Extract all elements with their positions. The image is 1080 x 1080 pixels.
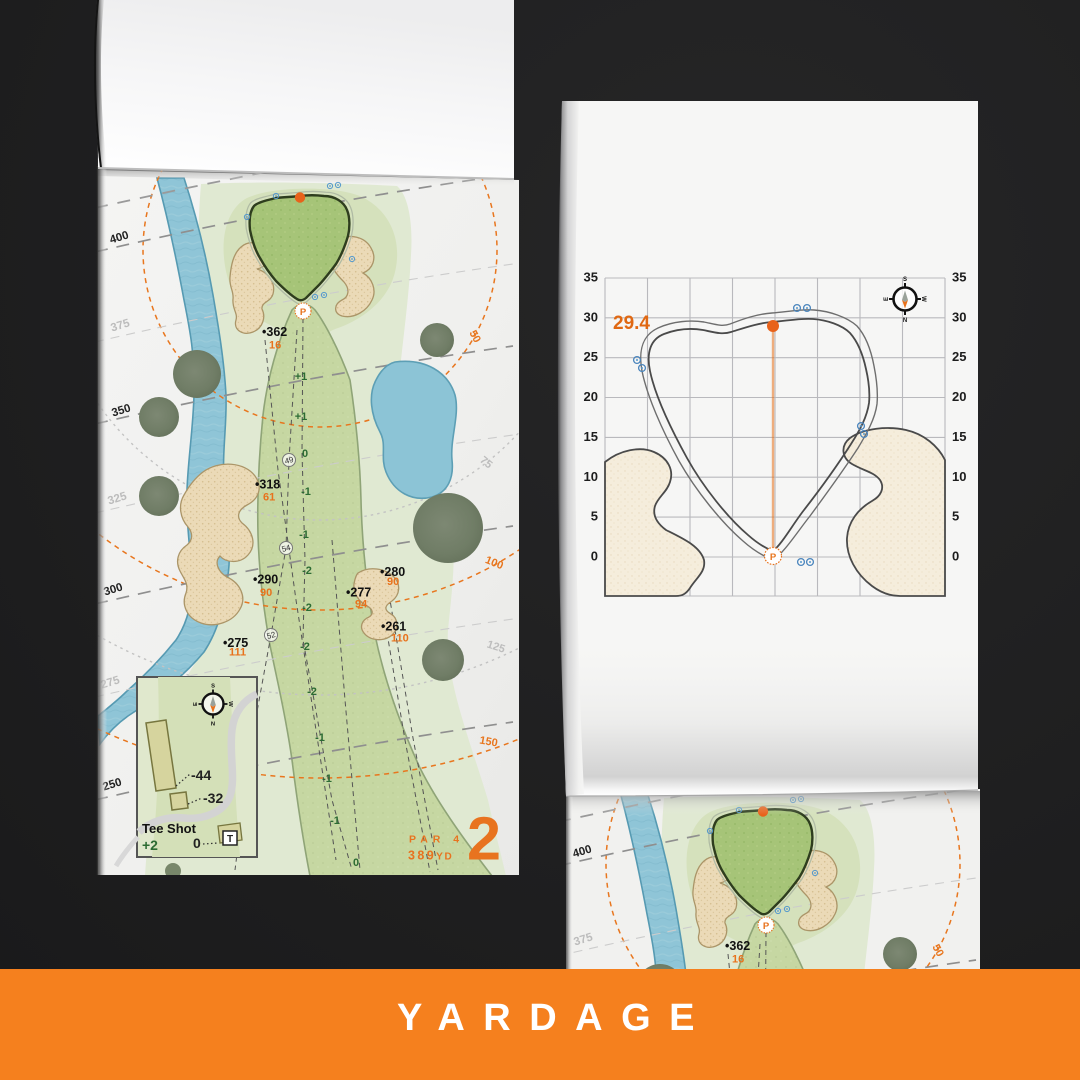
svg-text:0: 0 — [952, 549, 959, 564]
svg-text:15: 15 — [952, 429, 966, 444]
svg-text:W: W — [920, 296, 926, 302]
svg-text:30: 30 — [584, 310, 598, 325]
svg-text:29.4: 29.4 — [613, 313, 650, 334]
svg-text:5: 5 — [591, 509, 598, 524]
svg-text:15: 15 — [584, 429, 598, 444]
svg-text:N: N — [903, 318, 907, 324]
svg-text:25: 25 — [584, 349, 598, 364]
svg-text:YARDAGE: YARDAGE — [397, 997, 713, 1039]
svg-text:10: 10 — [584, 469, 598, 484]
svg-text:10: 10 — [952, 469, 966, 484]
svg-text:25: 25 — [952, 349, 966, 364]
svg-text:S: S — [903, 277, 907, 283]
svg-text:35: 35 — [584, 270, 598, 285]
svg-text:P: P — [770, 552, 777, 563]
svg-text:30: 30 — [952, 310, 966, 325]
svg-text:20: 20 — [952, 389, 966, 404]
svg-text:E: E — [884, 297, 890, 301]
svg-text:35: 35 — [952, 270, 966, 285]
svg-text:0: 0 — [591, 549, 598, 564]
svg-text:5: 5 — [952, 509, 959, 524]
svg-text:20: 20 — [584, 389, 598, 404]
